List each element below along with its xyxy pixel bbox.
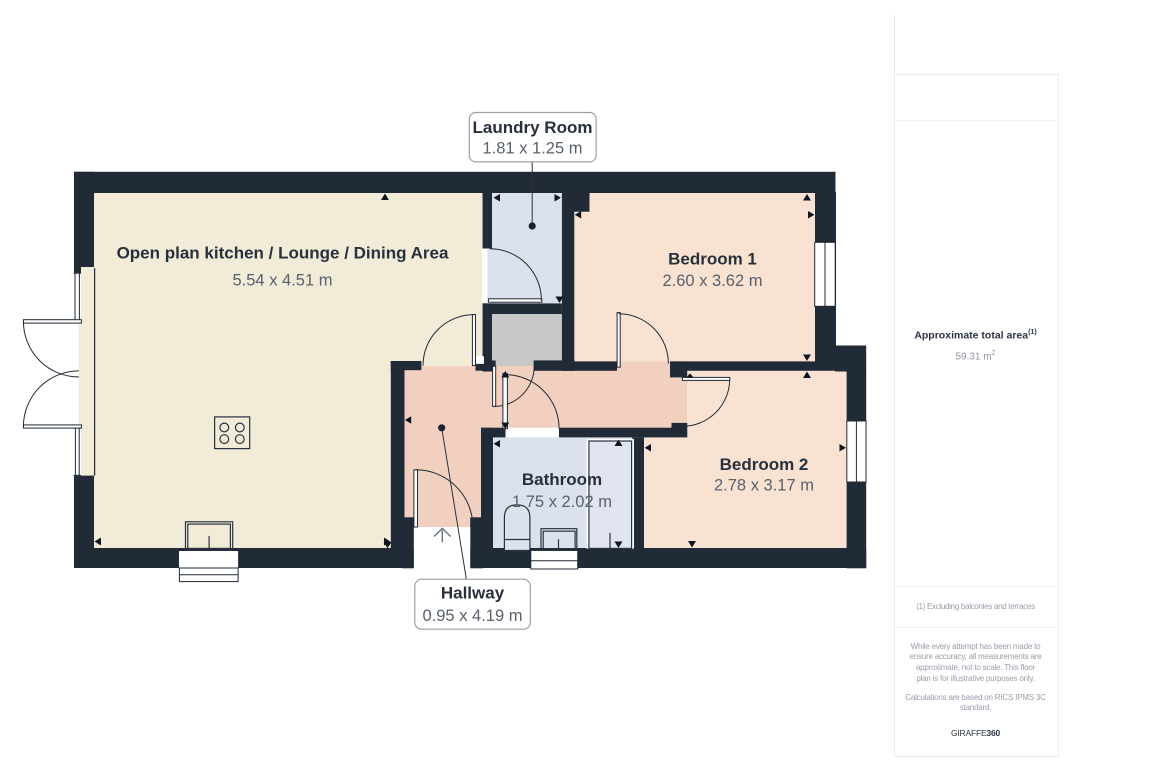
svg-text:Hallway: Hallway — [441, 584, 505, 603]
svg-text:1.75 x 2.02 m: 1.75 x 2.02 m — [512, 493, 612, 511]
svg-text:Bedroom 1: Bedroom 1 — [668, 250, 757, 269]
svg-text:Laundry Room: Laundry Room — [473, 118, 593, 137]
svg-text:0.95 x 4.19 m: 0.95 x 4.19 m — [423, 607, 523, 625]
svg-text:2.60 x 3.62 m: 2.60 x 3.62 m — [663, 272, 763, 290]
svg-text:Bedroom 2: Bedroom 2 — [720, 455, 809, 474]
svg-text:Bathroom: Bathroom — [522, 470, 602, 489]
svg-text:Open plan kitchen / Lounge / D: Open plan kitchen / Lounge / Dining Area — [117, 244, 449, 263]
svg-text:1.81 x 1.25 m: 1.81 x 1.25 m — [483, 139, 583, 157]
svg-text:2.78 x 3.17 m: 2.78 x 3.17 m — [714, 477, 814, 495]
svg-text:5.54 x 4.51 m: 5.54 x 4.51 m — [233, 272, 333, 290]
